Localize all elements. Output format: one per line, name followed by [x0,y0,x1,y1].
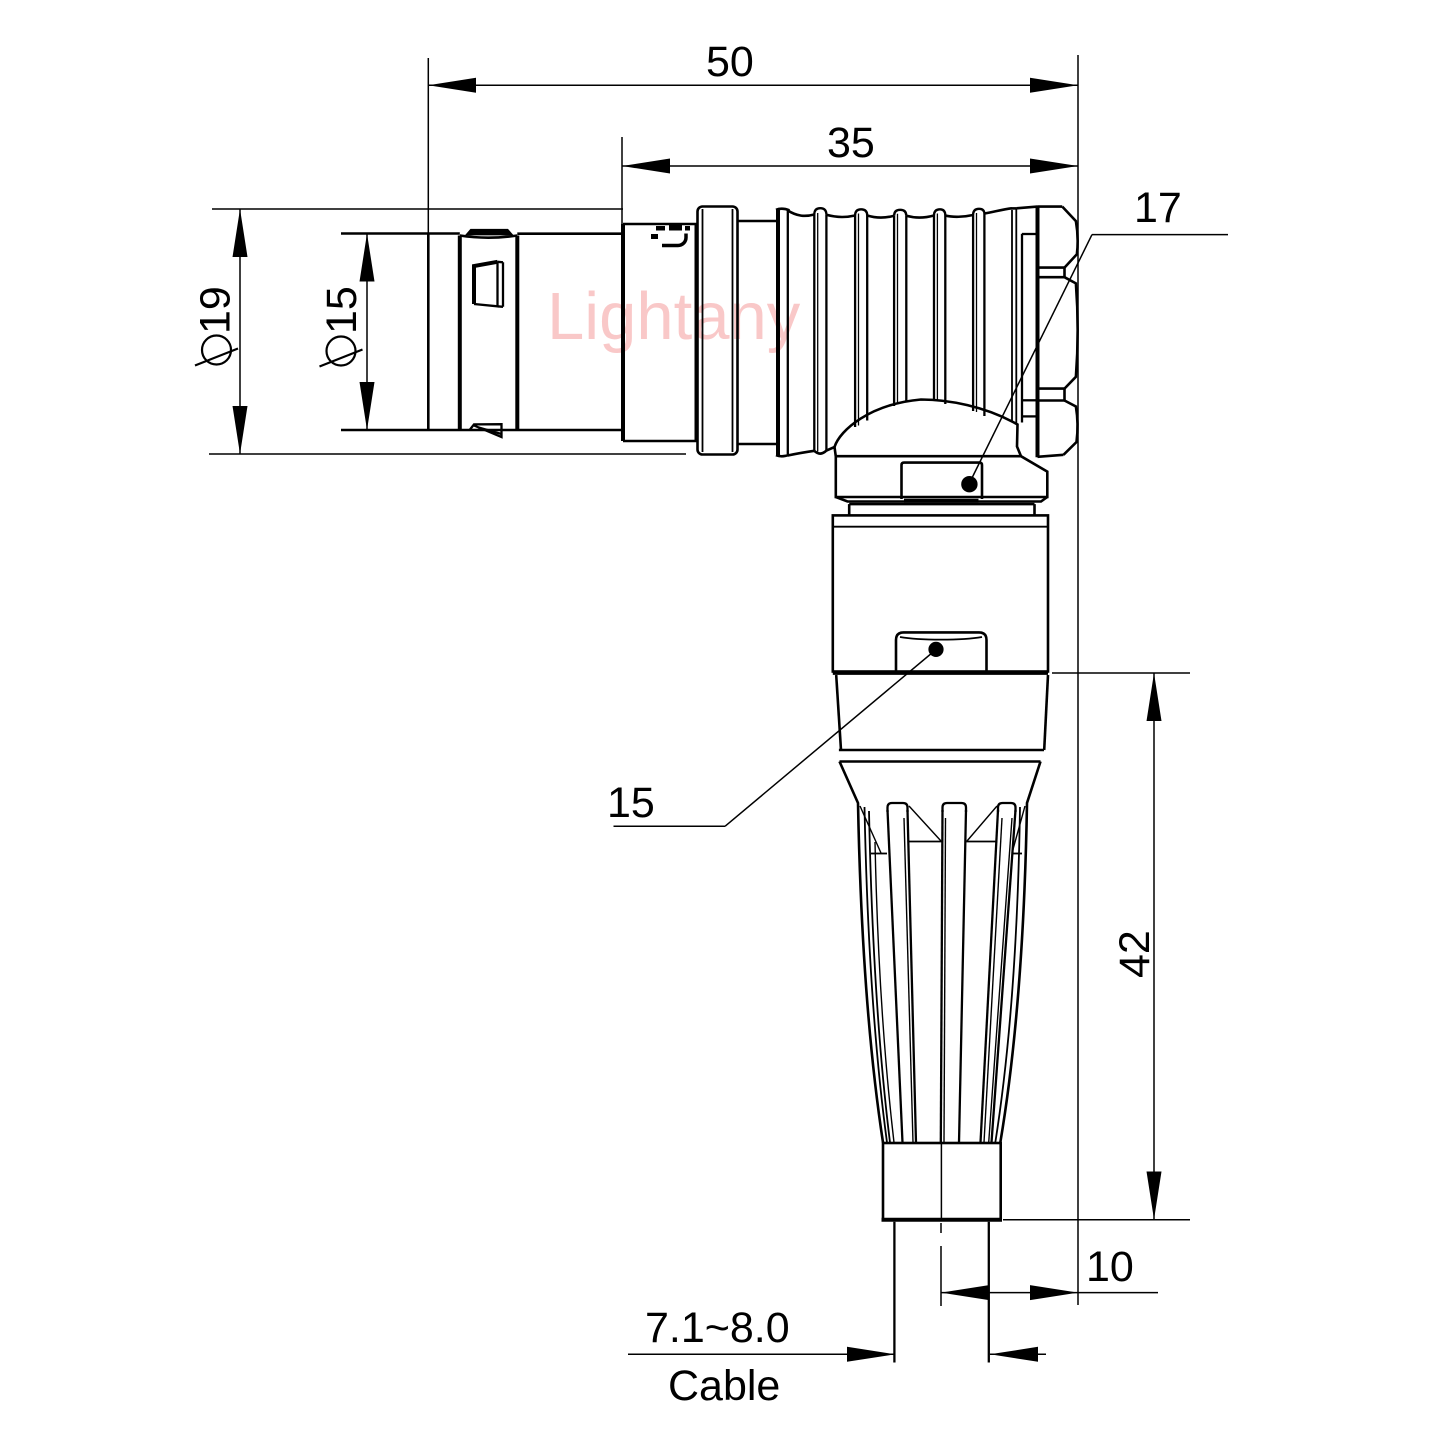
svg-text:Cable: Cable [668,1362,780,1410]
svg-text:10: 10 [1086,1243,1134,1291]
svg-text:15: 15 [607,779,655,827]
svg-text:7.1~8.0: 7.1~8.0 [645,1304,790,1352]
svg-text:19: 19 [192,286,240,334]
svg-text:17: 17 [1134,184,1182,232]
svg-text:50: 50 [706,38,754,86]
svg-text:35: 35 [827,119,875,167]
svg-text:Lightany: Lightany [547,279,801,354]
svg-text:15: 15 [318,286,366,334]
svg-text:42: 42 [1111,930,1159,978]
